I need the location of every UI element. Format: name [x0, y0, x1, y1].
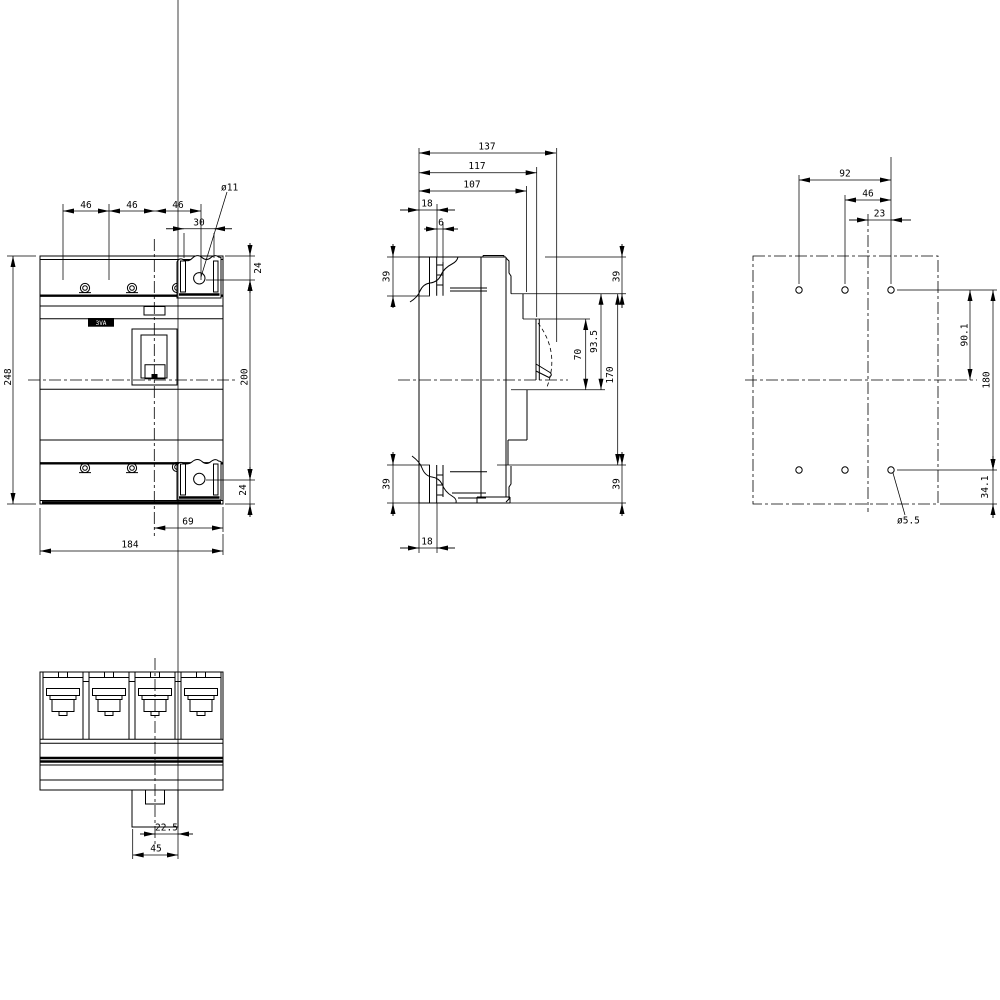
dim-text-45: 45	[150, 844, 161, 855]
side-escutcheon-strip	[477, 256, 510, 504]
drill-hole	[796, 287, 802, 293]
dim-text-22-5: 22.5	[155, 823, 178, 834]
drilling-plan-outline	[745, 214, 977, 512]
dim-text-18-bottom: 18	[421, 537, 433, 548]
dimension-drawing-page: { "drawing": { "product_label": "3VA", "…	[0, 0, 1000, 1000]
bottom-view: 22.5 45	[40, 658, 223, 859]
dim-text-180: 180	[982, 371, 993, 388]
dim-text-117: 117	[468, 161, 485, 172]
dim-text-39-top-left: 39	[382, 271, 393, 283]
terminal-block	[43, 672, 83, 739]
front-view-body: 3VA	[28, 239, 236, 536]
dim-text-92: 92	[839, 169, 850, 180]
dim-text-39-top-right: 39	[612, 271, 623, 283]
dim-text-pole-pitch-2: 46	[126, 200, 138, 211]
drilling-plan-view: 92 46 23 90.1 180 34.1 ø5.5	[745, 157, 997, 527]
bottom-view-body	[40, 658, 223, 846]
dim-text-46-plan: 46	[862, 189, 874, 200]
front-view-dimensions: 46 46 46 30 ø11 24 200 24 248 69 184	[3, 0, 264, 829]
side-view-body	[398, 256, 568, 504]
drill-hole	[888, 467, 894, 473]
dim-text-39-bottom-left: 39	[382, 478, 393, 490]
bottom-body-outline	[40, 672, 223, 790]
dim-text-6: 6	[438, 218, 444, 229]
dim-text-93-5: 93.5	[589, 330, 600, 353]
side-break-line-top	[410, 257, 458, 302]
side-handle-travel-arc	[538, 323, 552, 387]
bottom-rail-thick-lines	[40, 758, 223, 762]
mounting-tab-top	[177, 256, 221, 298]
dim-text-137: 137	[478, 142, 495, 153]
bottom-view-dimensions: 22.5 45	[133, 823, 193, 860]
dim-text-pole-pitch-1: 46	[80, 200, 92, 211]
screw-icon	[79, 283, 91, 292]
drawing-canvas: 3VA	[0, 0, 1000, 1000]
dim-text-170: 170	[605, 366, 616, 383]
screw-icon	[126, 463, 138, 472]
plan-center-lines	[745, 214, 977, 512]
terminal-block	[181, 672, 221, 739]
front-extension-lines	[7, 0, 255, 829]
dim-text-107: 107	[463, 180, 480, 191]
dim-text-30: 30	[193, 218, 205, 229]
dim-text-pole-pitch-3: 46	[172, 200, 184, 211]
side-view: 137 117 107 18 6 39 39 18 70 93.5 170 39…	[382, 142, 627, 554]
front-view: 3VA	[3, 0, 264, 829]
terminal-block	[89, 672, 129, 739]
drill-hole	[796, 467, 802, 473]
dim-text-90-1: 90.1	[960, 323, 971, 346]
dim-text-248: 248	[3, 368, 14, 385]
side-view-dimensions: 137 117 107 18 6 39 39 18 70 93.5 170 39…	[382, 142, 627, 554]
dim-text-23: 23	[874, 209, 885, 220]
dim-text-70: 70	[573, 349, 584, 361]
dim-text-34-1: 34.1	[980, 475, 991, 498]
screw-icon	[79, 463, 91, 472]
dim-text-18-top: 18	[421, 199, 433, 210]
screw-icon	[126, 283, 138, 292]
dim-text-hole-dia: ø11	[221, 183, 238, 194]
dim-text-69: 69	[182, 517, 194, 528]
dim-text-184: 184	[121, 540, 138, 551]
drill-hole-leader-line	[893, 473, 905, 515]
dim-text-24-bottom: 24	[238, 484, 249, 496]
bottom-body-lines	[40, 739, 223, 780]
side-handle-blade	[536, 364, 551, 378]
rating-label-text: 3VA	[96, 320, 107, 327]
drill-hole	[842, 287, 848, 293]
drilling-plan-dimensions: 92 46 23 90.1 180 34.1 ø5.5	[799, 157, 997, 527]
drill-hole	[842, 467, 848, 473]
dim-text-24-top: 24	[253, 262, 264, 274]
dim-text-200: 200	[240, 368, 251, 385]
dim-text-drill-dia: ø5.5	[897, 516, 920, 527]
drill-hole	[888, 287, 894, 293]
dim-text-39-bottom-right: 39	[612, 478, 623, 490]
